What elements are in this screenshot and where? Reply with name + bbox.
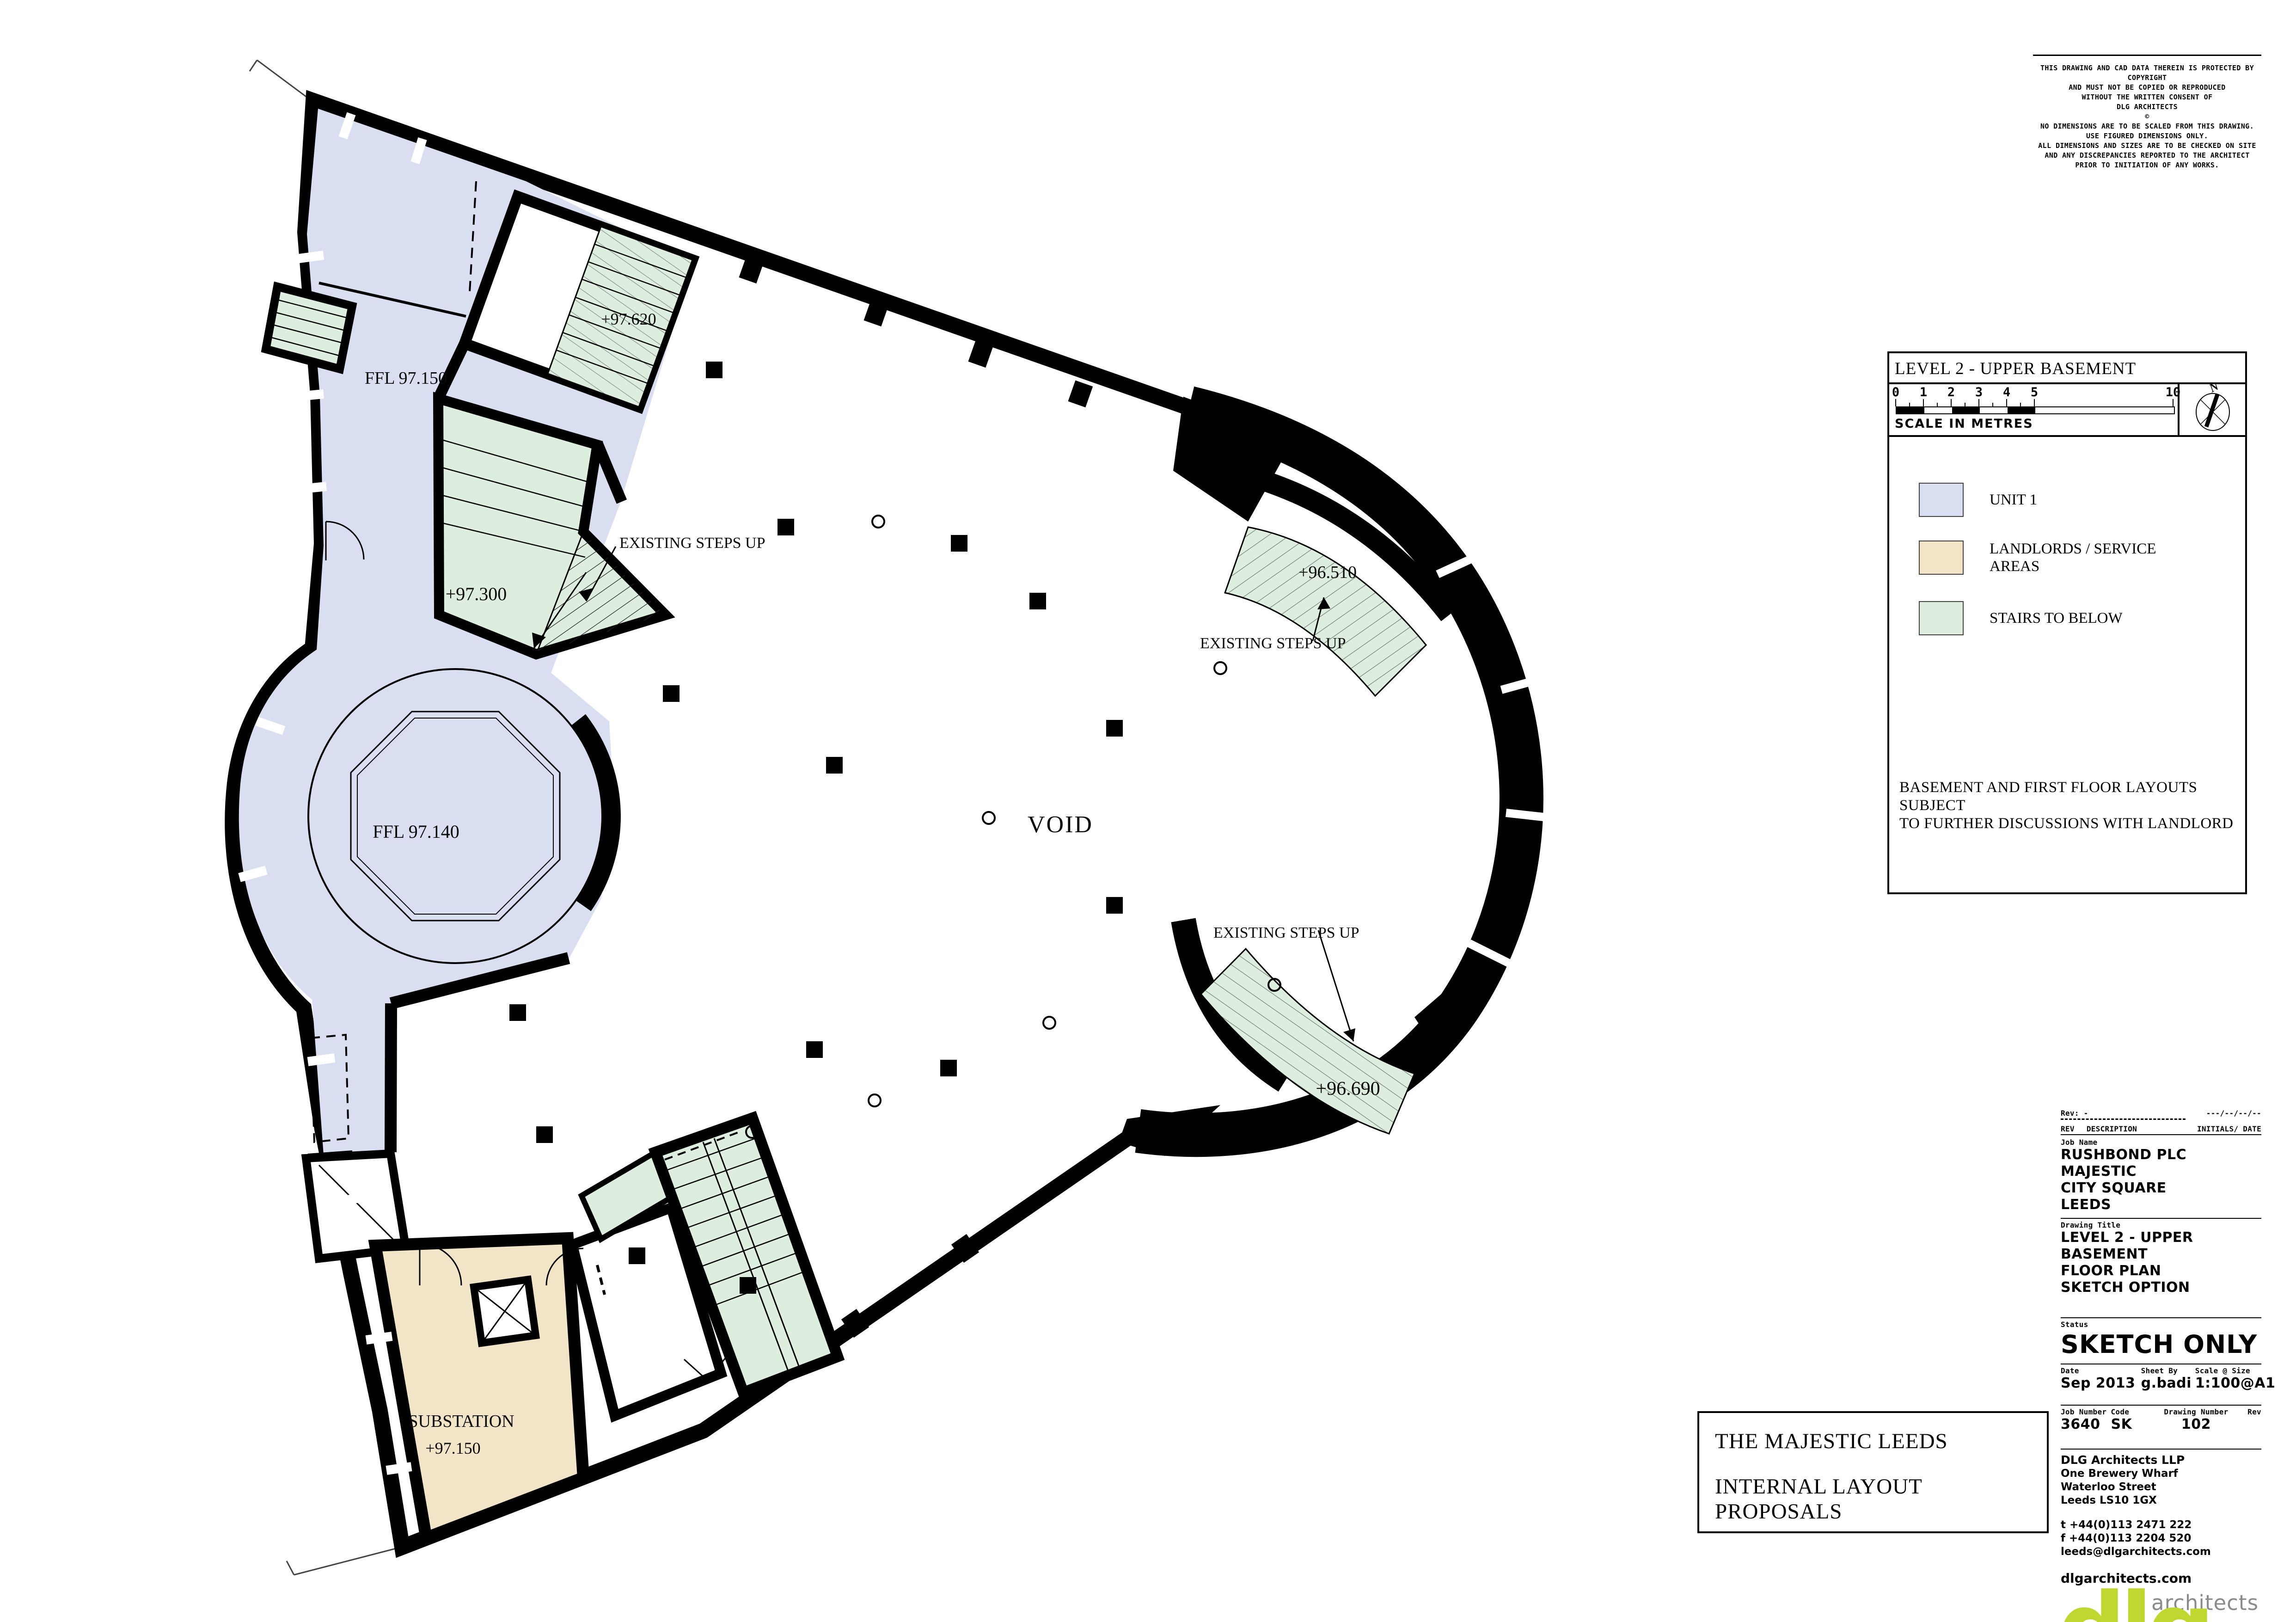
legend-note: BASEMENT AND FIRST FLOOR LAYOUTS SUBJECT…	[1899, 779, 2245, 833]
firm-name: DLG Architects LLP	[2061, 1453, 2261, 1467]
scale-number: 3	[1975, 385, 1983, 399]
scale-number: 5	[2031, 385, 2038, 399]
rev-date-placeholder: ---/--/--/--	[2206, 1109, 2261, 1118]
copyright-line: THIS DRAWING AND CAD DATA THEREIN IS PRO…	[2033, 63, 2261, 73]
legend-label-landlords-2: AREAS	[1990, 558, 2156, 575]
scale-tick	[2006, 399, 2007, 406]
divider	[2061, 1405, 2261, 1406]
title-block: Rev: - ---/--/--/-- REV DESCRIPTION INIT…	[2061, 1109, 2261, 1622]
label-void: VOID	[1028, 811, 1093, 838]
label-substation-level: +97.150	[425, 1439, 480, 1457]
code-label: Code	[2111, 1407, 2161, 1416]
job-name-line: CITY SQUARE	[2061, 1180, 2261, 1197]
job-name-line: RUSHBOND PLC	[2061, 1147, 2261, 1163]
label-steps-up-top-right: EXISTING STEPS UP	[1200, 635, 1346, 652]
date-value: Sep 2013	[2061, 1375, 2141, 1392]
legend-title: LEVEL 2 - UPPER BASEMENT	[1889, 353, 2245, 384]
drawing-title-line: LEVEL 2 - UPPER BASEMENT	[2061, 1229, 2261, 1263]
legend-box: LEVEL 2 - UPPER BASEMENT 0 1 2 3 4 5 10	[1887, 351, 2247, 894]
firm-email: leeds@dlgarchitects.com	[2061, 1545, 2261, 1559]
copyright-line: COPYRIGHT	[2033, 73, 2261, 83]
scale-size-value: 1:100@A1	[2195, 1375, 2261, 1392]
date-label: Date	[2061, 1366, 2141, 1375]
label-96-510: +96.510	[1298, 563, 1357, 582]
floor-plan-drawing: FFL 97.150 +97.620 EXISTING STEPS UP +97…	[0, 0, 1692, 1622]
scale-segment	[2008, 407, 2035, 413]
label-97-300: +97.300	[446, 584, 507, 604]
scale-size-label: Scale @ Size	[2195, 1366, 2261, 1375]
scale-number: 2	[1947, 385, 1955, 399]
copyright-line: PRIOR TO INITIATION OF ANY WORKS.	[2033, 160, 2261, 170]
scale-bar-track	[1896, 406, 2175, 414]
label-97-620: +97.620	[601, 310, 656, 328]
sheet-by-value: g.badi	[2141, 1375, 2195, 1392]
legend-swatch-stairs	[1919, 602, 1963, 635]
copyright-line: ALL DIMENSIONS AND SIZES ARE TO BE CHECK…	[2033, 141, 2261, 151]
firm-address-line: One Brewery Wharf	[2061, 1467, 2261, 1481]
divider	[2061, 1317, 2261, 1318]
legend-label-stairs: STAIRS TO BELOW	[1990, 609, 2123, 627]
legend-note-line1: BASEMENT AND FIRST FLOOR LAYOUTS SUBJECT	[1899, 779, 2245, 815]
copyright-line: AND ANY DISCREPANCIES REPORTED TO THE AR…	[2033, 151, 2261, 160]
label-steps-up-left: EXISTING STEPS UP	[619, 535, 765, 552]
legend-swatch-unit1	[1919, 483, 1963, 516]
scale-bar: 0 1 2 3 4 5 10 SCALE IN METRES	[1889, 384, 2245, 437]
scale-tick	[1895, 399, 1896, 406]
legend-item-unit1: UNIT 1	[1919, 483, 2037, 517]
lift-shaft	[474, 1279, 536, 1343]
scale-number: 4	[2003, 385, 2010, 399]
job-number-value: 3640	[2061, 1416, 2111, 1433]
copyright-line: WITHOUT THE WRITTEN CONSENT OF	[2033, 92, 2261, 102]
project-title-box: THE MAJESTIC LEEDS INTERNAL LAYOUT PROPO…	[1697, 1411, 2049, 1533]
project-title-line1: THE MAJESTIC LEEDS	[1715, 1429, 2047, 1454]
drawing-sheet: FFL 97.150 +97.620 EXISTING STEPS UP +97…	[0, 0, 2296, 1622]
legend-item-stairs: STAIRS TO BELOW	[1919, 601, 2123, 635]
drawing-number-label: Drawing Number	[2161, 1407, 2231, 1416]
legend-swatch-landlords	[1919, 541, 1963, 574]
label-ffl-97-140: FFL 97.140	[373, 821, 459, 842]
firm-address-line: Leeds LS10 1GX	[2061, 1494, 2261, 1507]
label-steps-up-bottom-right: EXISTING STEPS UP	[1213, 924, 1359, 941]
scale-tick	[1923, 399, 1924, 406]
code-value: SK	[2111, 1416, 2161, 1433]
legend-label-unit1: UNIT 1	[1990, 491, 2037, 509]
legend-label-landlords-1: LANDLORDS / SERVICE	[1990, 540, 2156, 558]
drawing-title-label: Drawing Title	[2061, 1221, 2261, 1229]
divider	[2061, 1364, 2261, 1364]
scale-tick	[1978, 399, 1979, 406]
scale-segment	[1952, 407, 1980, 413]
firm-phone: t +44(0)113 2471 222	[2061, 1518, 2261, 1532]
project-title-line2: INTERNAL LAYOUT PROPOSALS	[1715, 1474, 2047, 1524]
dlg-logo: architects dlg	[2061, 1591, 2261, 1622]
status-label: Status	[2061, 1320, 2261, 1329]
scale-number: 1	[1920, 385, 1927, 399]
north-arrow: N	[2178, 384, 2245, 435]
scale-tick	[2173, 399, 2174, 406]
job-name-label: Job Name	[2061, 1138, 2261, 1147]
initials-date-col-header: INITIALS/ DATE	[2197, 1124, 2261, 1133]
rev-column-label: Rev	[2231, 1407, 2261, 1416]
copyright-line: DLG ARCHITECTS	[2033, 102, 2261, 112]
copyright-note: THIS DRAWING AND CAD DATA THEREIN IS PRO…	[2033, 55, 2261, 170]
job-name-line: MAJESTIC	[2061, 1163, 2261, 1180]
copyright-line: NO DIMENSIONS ARE TO BE SCALED FROM THIS…	[2033, 122, 2261, 131]
divider	[2061, 1218, 2261, 1219]
rev-col-header: REV	[2061, 1124, 2075, 1133]
job-number-label: Job Number	[2061, 1407, 2111, 1416]
copyright-line: USE FIGURED DIMENSIONS ONLY.	[2033, 131, 2261, 141]
legend-item-landlords: LANDLORDS / SERVICE AREAS	[1919, 540, 2156, 575]
description-col-header: DESCRIPTION	[2087, 1124, 2137, 1133]
rev-dashed-rule	[2061, 1118, 2186, 1120]
scale-caption: SCALE IN METRES	[1895, 417, 2033, 431]
scale-tick	[1951, 399, 1952, 406]
stair-left-small	[266, 287, 352, 369]
scale-segment	[1897, 407, 1924, 413]
scale-tick	[2034, 399, 2035, 406]
scale-number: 0	[1892, 385, 1899, 399]
divider	[2061, 1449, 2261, 1450]
label-substation: SUBSTATION	[408, 1412, 514, 1431]
drawing-title-line: SKETCH OPTION	[2061, 1279, 2261, 1296]
firm-fax: f +44(0)113 2204 520	[2061, 1532, 2261, 1545]
copyright-symbol: ©	[2033, 112, 2261, 122]
firm-address-line: Waterloo Street	[2061, 1481, 2261, 1494]
legend-note-line2: TO FURTHER DISCUSSIONS WITH LANDLORD	[1899, 815, 2245, 833]
status-value: SKETCH ONLY	[2061, 1330, 2261, 1359]
sheet-by-label: Sheet By	[2141, 1366, 2195, 1375]
label-96-690: +96.690	[1316, 1078, 1380, 1100]
drawing-number-value: 102	[2161, 1416, 2231, 1433]
label-ffl-97-150: FFL 97.150	[365, 369, 447, 388]
drawing-title-line: FLOOR PLAN	[2061, 1263, 2261, 1279]
copyright-line: AND MUST NOT BE COPIED OR REPRODUCED	[2033, 83, 2261, 92]
job-name-line: LEEDS	[2061, 1197, 2261, 1213]
rev-current: Rev: -	[2061, 1109, 2088, 1118]
logo-dlg-text: dlg	[2058, 1573, 2210, 1622]
